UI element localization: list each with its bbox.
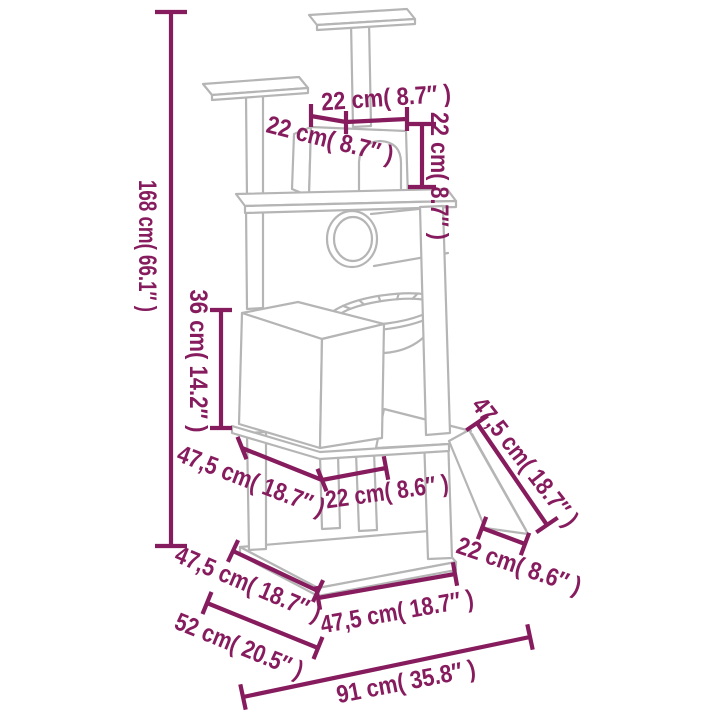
dim-base-diagonal-label: 52 cm( 20.5″ ) (171, 608, 308, 685)
dim-condo-height: 22 cm( 8.7″ ) (408, 112, 453, 240)
left-post-mid (246, 206, 263, 309)
dim-cube-house-height-label: 36 cm( 14.2″ ) (184, 290, 212, 433)
dim-cube-house-height-line (210, 310, 232, 428)
dim-cube-house-height: 36 cm( 14.2″ ) (184, 290, 232, 433)
right-post-tall (420, 206, 450, 435)
dim-condo-height-label: 22 cm( 8.7″ ) (425, 112, 453, 240)
cat-tree-diagram-svg: 168 cm( 66.1″ ) 22 cm( 8.7″ ) 22 cm( 8.7… (0, 0, 720, 720)
left-post-upper (246, 95, 263, 198)
cube-right-face (320, 324, 384, 448)
dim-top-platform-width-label: 22 cm( 8.7″ ) (320, 79, 452, 116)
dim-total-height-label: 168 cm( 66.1″ ) (133, 180, 161, 312)
dimension-diagram: 168 cm( 66.1″ ) 22 cm( 8.7″ ) 22 cm( 8.7… (0, 0, 720, 720)
